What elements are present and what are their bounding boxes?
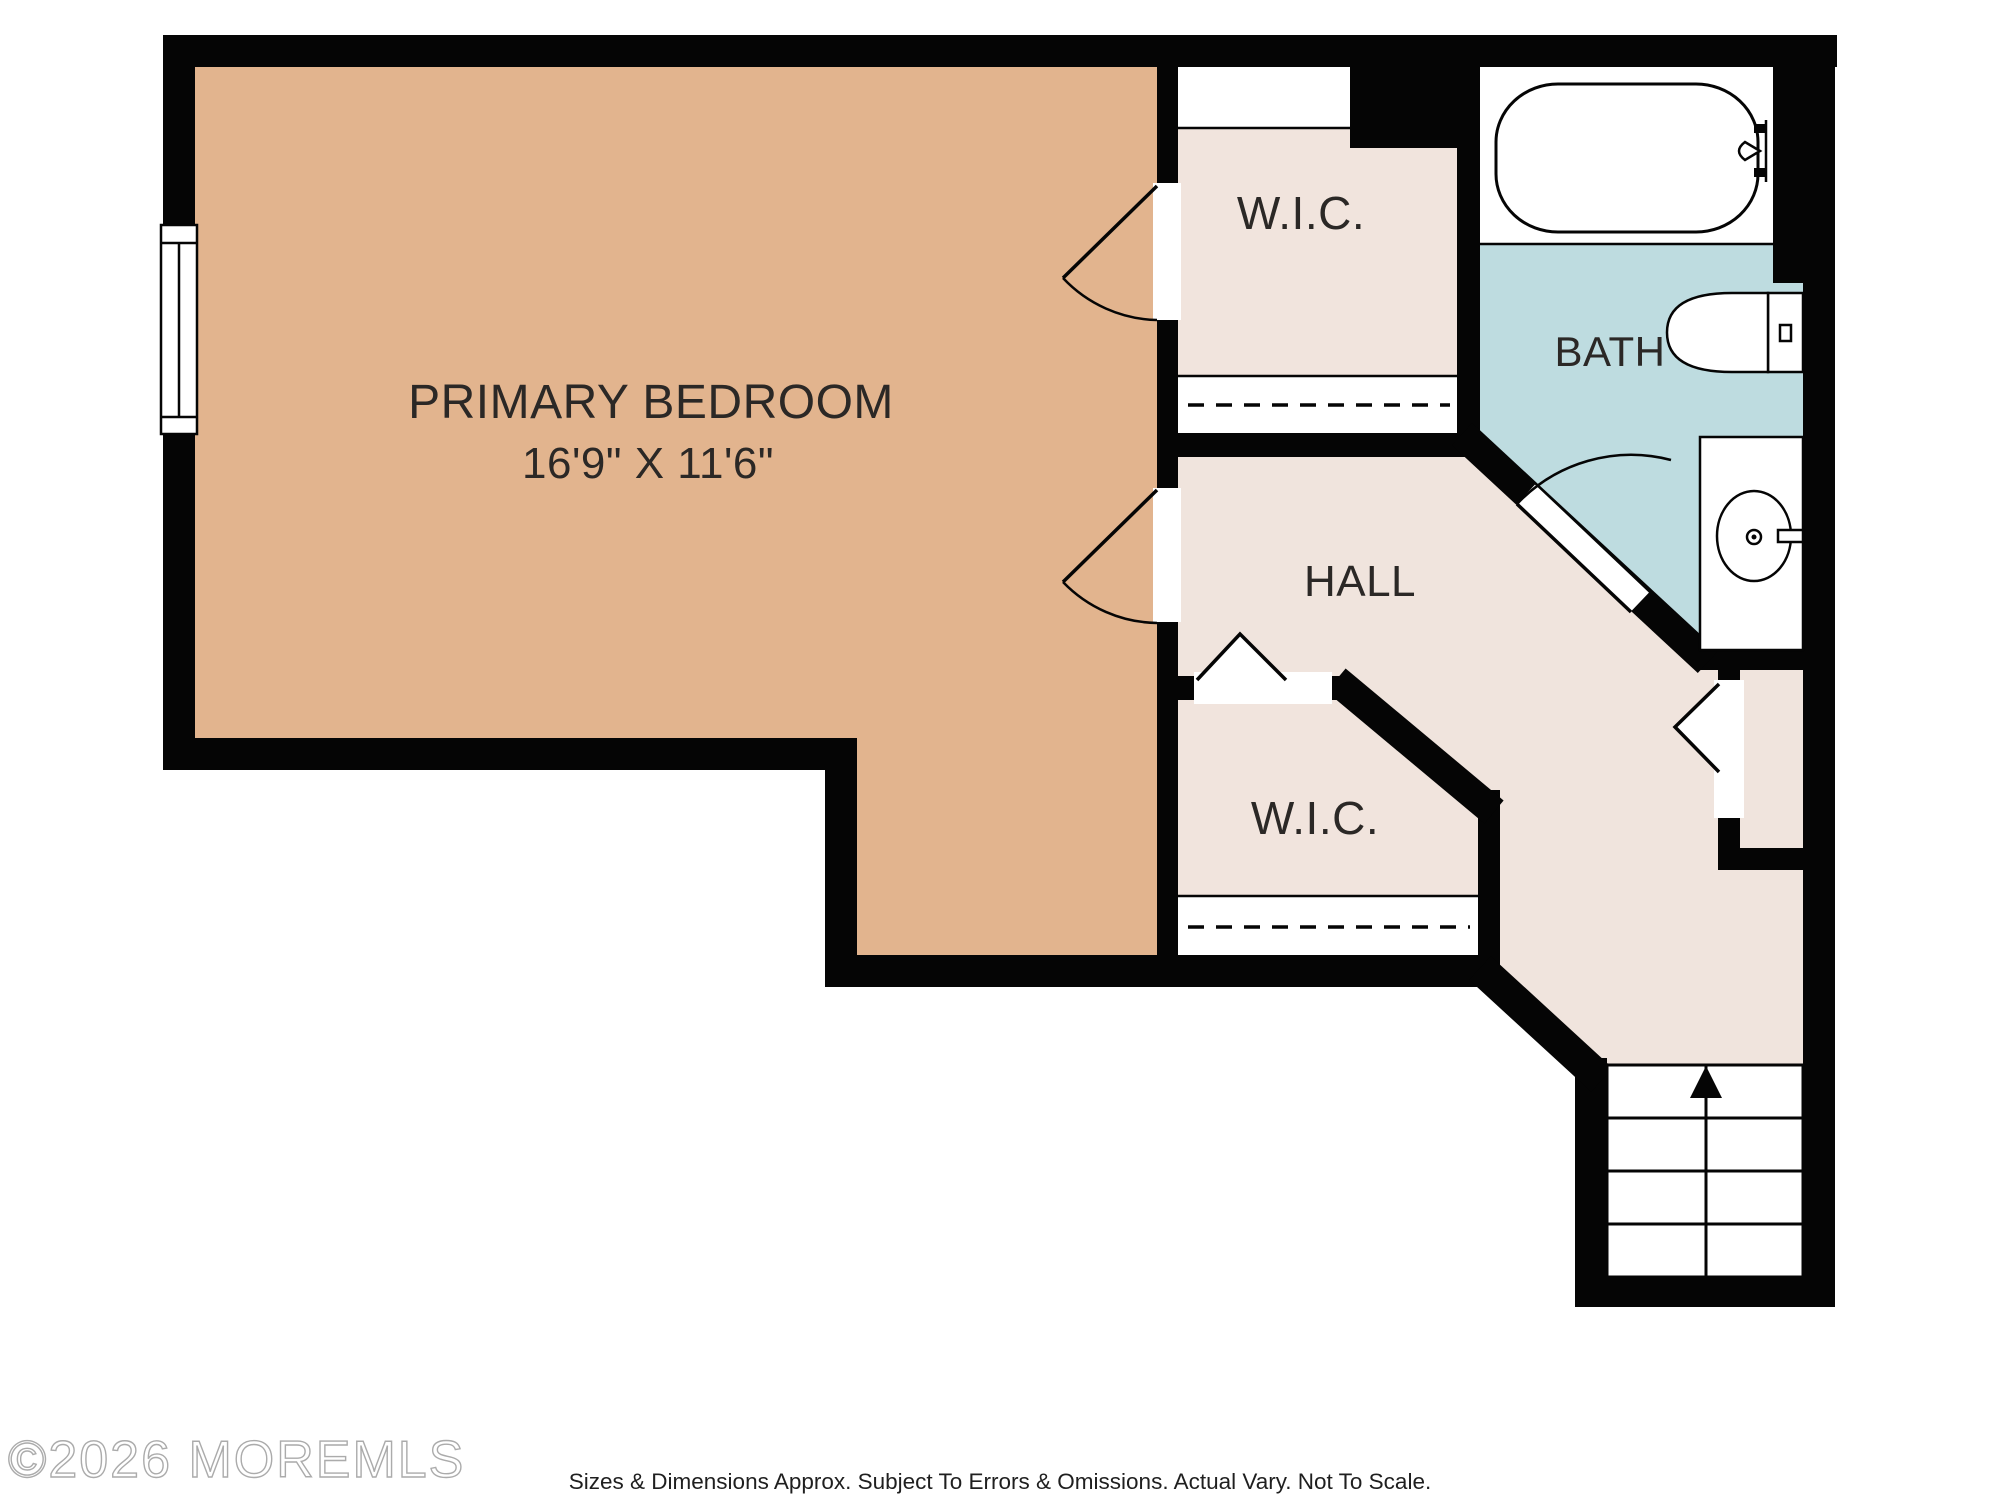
room-label-hall: HALL xyxy=(1304,557,1416,606)
room-label-wic-upper: W.I.C. xyxy=(1237,187,1365,239)
toilet-icon xyxy=(1667,293,1803,372)
bathtub-icon xyxy=(1496,84,1766,232)
room-dimensions-primary-bedroom: 16'9" X 11'6" xyxy=(522,439,774,488)
room-primary-bedroom xyxy=(195,67,1157,957)
disclaimer: Sizes & Dimensions Approx. Subject To Er… xyxy=(569,1469,1431,1494)
sink-icon xyxy=(1700,437,1803,650)
stairs-up-icon xyxy=(1607,1065,1803,1277)
closet-rod-upper xyxy=(1178,376,1457,433)
room-label-wic-lower: W.I.C. xyxy=(1251,792,1379,844)
closet-shelf-upper xyxy=(1178,67,1350,128)
room-label-bath: BATH xyxy=(1555,328,1666,375)
watermark: ©2026 MOREMLS xyxy=(8,1431,465,1489)
room-label-primary-bedroom: PRIMARY BEDROOM xyxy=(408,376,894,429)
window-icon xyxy=(161,225,197,434)
floor-plan: PRIMARY BEDROOM 16'9" X 11'6" W.I.C. BAT… xyxy=(0,0,2000,1500)
closet-rod-lower xyxy=(1178,896,1478,957)
